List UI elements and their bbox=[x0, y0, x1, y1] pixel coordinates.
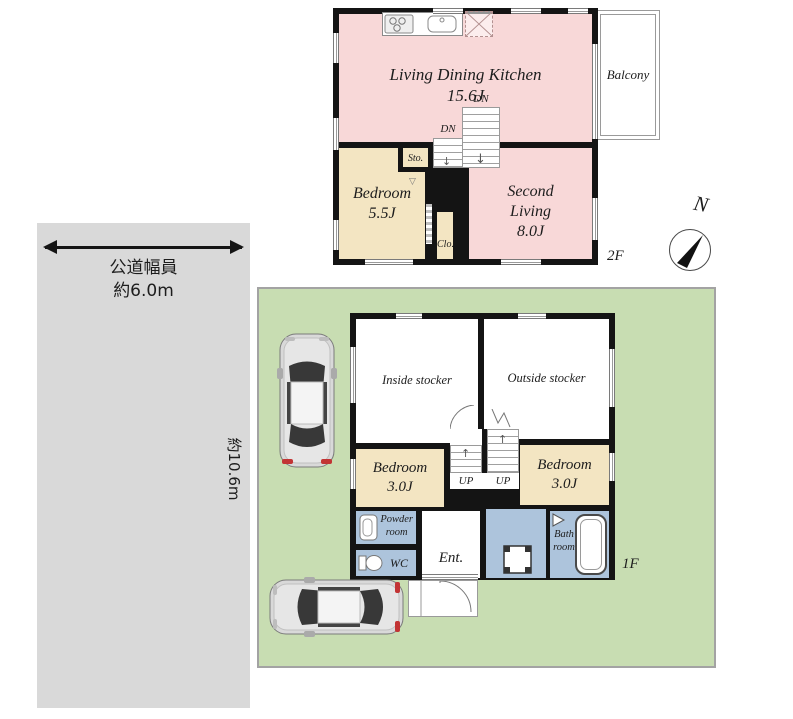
bedroom-2f-size: 5.5J bbox=[353, 204, 411, 224]
road-width-arrow bbox=[45, 246, 242, 249]
stairs-up-left: ↑ bbox=[450, 445, 482, 473]
bedroom-2f-name: Bedroom bbox=[353, 184, 411, 204]
closet-label: Clo. bbox=[437, 239, 453, 251]
bath-door-icon bbox=[552, 513, 566, 527]
road-area: 公道幅員 約6.0m bbox=[37, 223, 250, 708]
room-storage: Sto. bbox=[398, 148, 428, 172]
storage-label: Sto. bbox=[403, 153, 428, 165]
stairs-down-side: ↓ bbox=[433, 138, 463, 168]
stair-up-arrow-icon: ↑ bbox=[461, 448, 470, 459]
vanity-sink-icon bbox=[359, 514, 379, 541]
room-bath: Bath room bbox=[550, 511, 609, 578]
car-icon bbox=[268, 577, 406, 637]
room-wc: WC bbox=[356, 550, 416, 576]
stair-up-arrow-icon: ↑ bbox=[498, 434, 507, 445]
stairs-down-main: ↓ bbox=[462, 107, 500, 168]
bedroom-1f-right-size: 3.0J bbox=[537, 475, 591, 494]
entrance-label: Ent. bbox=[422, 549, 480, 568]
second-living-name-line2: Living bbox=[507, 202, 553, 222]
stairs-down-label: DN bbox=[462, 93, 500, 105]
window bbox=[350, 347, 356, 403]
road-width-label-line2: 約6.0m bbox=[37, 280, 250, 303]
window bbox=[365, 259, 413, 265]
bedroom-sliding-door bbox=[426, 204, 432, 244]
window bbox=[350, 459, 356, 489]
entrance-porch bbox=[408, 580, 478, 617]
bedroom-1f-left-name: Bedroom bbox=[373, 459, 427, 478]
toilet-icon bbox=[358, 553, 384, 573]
room-bedroom-1f-left: Bedroom 3.0J bbox=[356, 449, 444, 507]
balcony: Balcony bbox=[596, 10, 660, 140]
window bbox=[396, 313, 422, 319]
window bbox=[511, 8, 541, 14]
bath-room-label-line1: Bath bbox=[551, 529, 577, 542]
second-living-size: 8.0J bbox=[507, 222, 553, 242]
ldk-name: Living Dining Kitchen bbox=[389, 64, 541, 85]
stairs-up-right: ↑ bbox=[487, 429, 519, 473]
stair-down-arrow-icon: ↓ bbox=[475, 153, 486, 166]
bath-room-label-line2: room bbox=[551, 542, 577, 555]
second-living-name-line1: Second bbox=[507, 182, 553, 202]
outside-stocker-label: Outside stocker bbox=[507, 371, 585, 387]
powder-room-label-line2: room bbox=[380, 527, 413, 540]
storage-door-icon: ▽ bbox=[409, 178, 416, 187]
car-icon bbox=[277, 332, 337, 470]
floor-2-label: 2F bbox=[607, 248, 624, 265]
compass-needle-icon bbox=[666, 226, 714, 274]
floor-1-label: 1F bbox=[622, 556, 639, 573]
road-width-label: 公道幅員 約6.0m bbox=[37, 257, 250, 303]
room-bedroom-1f-right: Bedroom 3.0J bbox=[520, 445, 609, 505]
arrow-left-icon bbox=[43, 240, 57, 254]
refrigerator-space-icon bbox=[465, 11, 493, 37]
balcony-label: Balcony bbox=[597, 11, 659, 139]
floor-2-plan: Living Dining Kitchen 15.6J Bedroom 5.5J… bbox=[333, 8, 598, 265]
bedroom-1f-left-size: 3.0J bbox=[373, 478, 427, 497]
window bbox=[333, 33, 339, 63]
room-powder: Powder room bbox=[356, 511, 416, 544]
window bbox=[568, 8, 588, 14]
kitchen-counter-icon bbox=[382, 12, 463, 36]
lot-depth-label: 約10.6m bbox=[227, 431, 245, 507]
room-washroom bbox=[486, 509, 546, 578]
window bbox=[609, 349, 615, 407]
room-closet: Clo. bbox=[433, 208, 457, 259]
north-label: N bbox=[692, 191, 711, 218]
stairs-up-label: UP bbox=[450, 475, 482, 487]
stairs-up-label: UP bbox=[487, 475, 519, 487]
door-swing-arc-icon bbox=[450, 405, 484, 431]
powder-room-label-line1: Powder bbox=[380, 514, 413, 527]
bathtub-icon bbox=[575, 514, 607, 575]
stair-down-arrow-icon: ↓ bbox=[442, 156, 451, 167]
compass: N bbox=[662, 194, 728, 278]
washing-machine-icon bbox=[503, 545, 532, 574]
stairwell: ↑ ↑ UP UP bbox=[450, 429, 519, 489]
wc-label: WC bbox=[390, 556, 408, 570]
road-width-label-line1: 公道幅員 bbox=[37, 257, 250, 280]
floor-1-plan: Inside stocker Outside stocker Bedroom 3… bbox=[350, 313, 615, 580]
window bbox=[433, 8, 463, 14]
stair-divider-wall bbox=[482, 429, 487, 473]
floor-plan-canvas: 公道幅員 約6.0m 約10.6m Balcony Living Dining … bbox=[0, 0, 793, 719]
window bbox=[609, 453, 615, 481]
arrow-right-icon bbox=[230, 240, 244, 254]
door-swing-arc-icon bbox=[490, 409, 516, 431]
window bbox=[333, 118, 339, 150]
inside-stocker-label: Inside stocker bbox=[382, 373, 452, 389]
bedroom-1f-right-name: Bedroom bbox=[537, 456, 591, 475]
stairs-down-label: DN bbox=[431, 123, 465, 135]
room-entrance: Ent. bbox=[422, 511, 480, 578]
window bbox=[501, 259, 541, 265]
window bbox=[518, 313, 546, 319]
entrance-door-arc-icon bbox=[409, 581, 477, 616]
window bbox=[333, 220, 339, 250]
window bbox=[592, 198, 598, 240]
